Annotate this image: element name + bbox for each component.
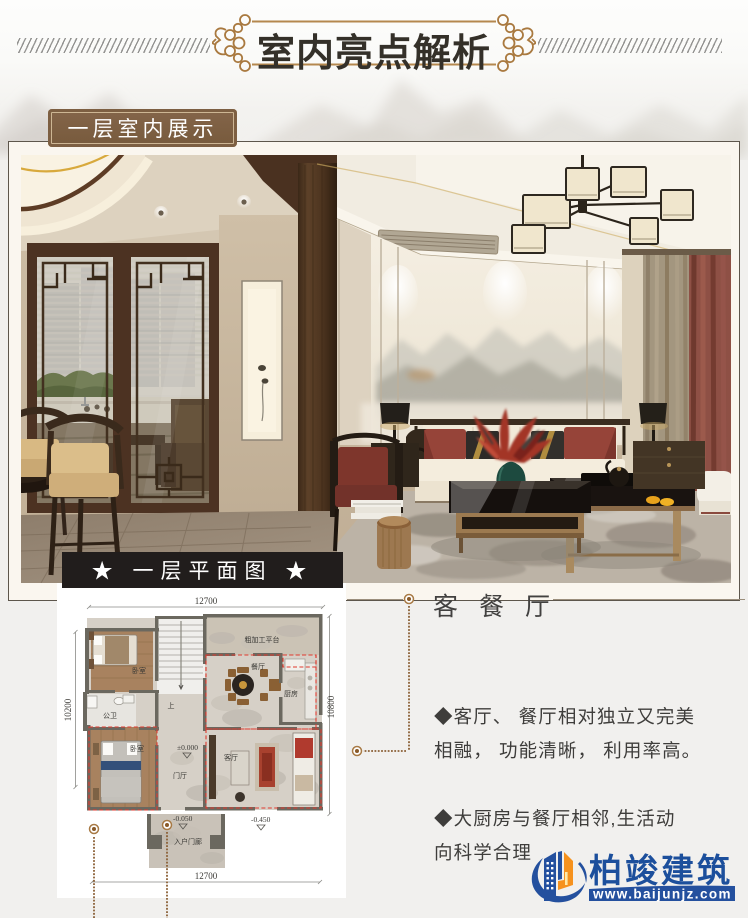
svg-text:www.baijunjz.com: www.baijunjz.com: [592, 887, 732, 902]
svg-text:柏竣建筑: 柏竣建筑: [589, 852, 733, 889]
